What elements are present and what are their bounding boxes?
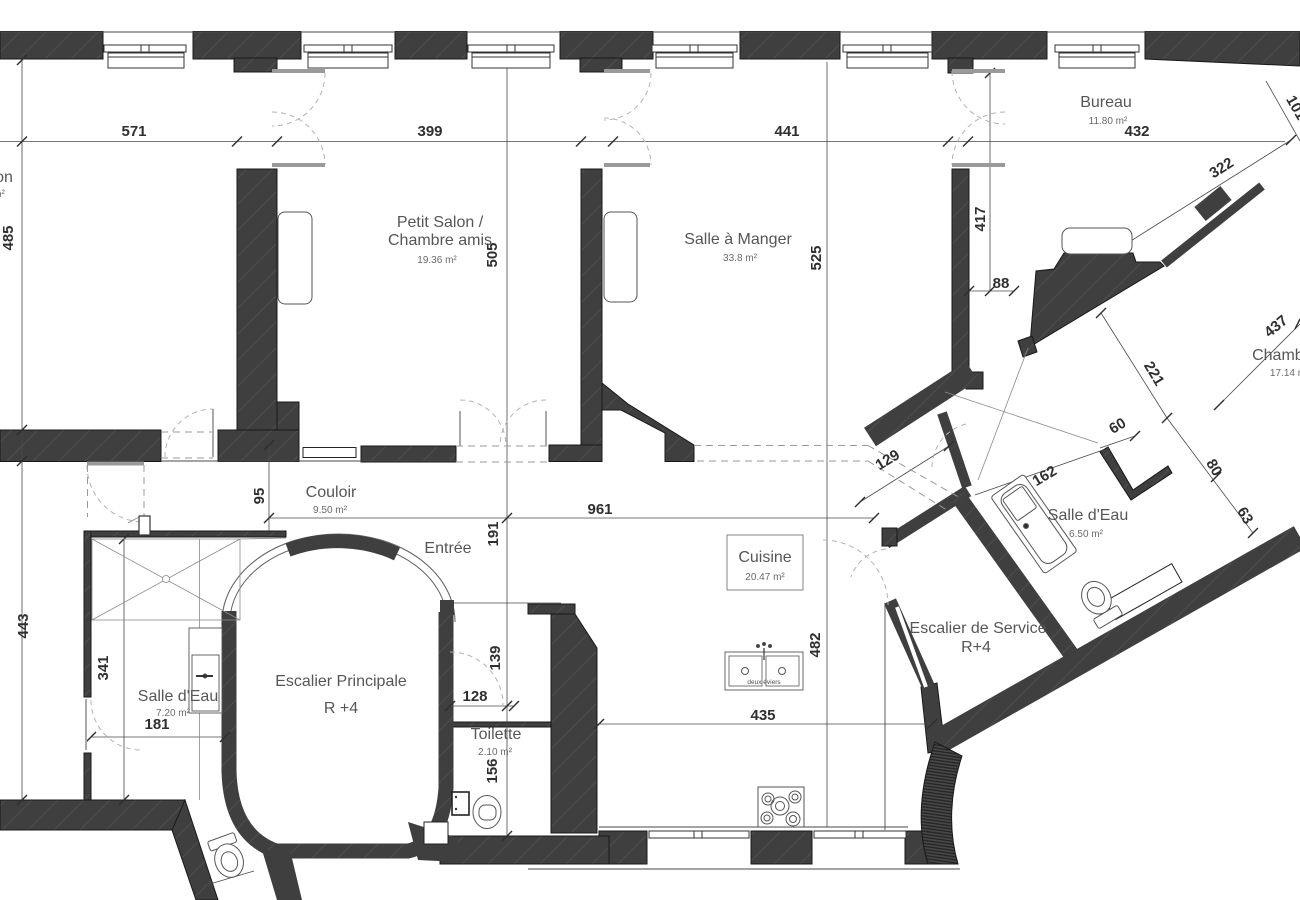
svg-text:11.80 m²: 11.80 m² (1089, 116, 1128, 127)
svg-text:432: 432 (1124, 123, 1149, 140)
svg-text:571: 571 (121, 123, 146, 140)
svg-text:R+4: R+4 (961, 639, 991, 656)
svg-text:417: 417 (972, 206, 989, 231)
svg-text:Bureau: Bureau (1080, 94, 1132, 111)
svg-text:60: 60 (1106, 415, 1129, 438)
svg-text:341: 341 (95, 655, 112, 680)
svg-text:399: 399 (417, 123, 442, 140)
svg-text:Salle d'Eau: Salle d'Eau (1048, 507, 1128, 524)
svg-text:441: 441 (774, 123, 799, 140)
svg-text:deux éviers: deux éviers (747, 679, 781, 686)
svg-text:19.36 m²: 19.36 m² (417, 255, 457, 266)
svg-text:Petit Salon /: Petit Salon / (397, 214, 484, 231)
svg-text:9.50 m²: 9.50 m² (313, 505, 348, 516)
svg-text:129: 129 (873, 446, 903, 473)
svg-text:95: 95 (251, 488, 268, 505)
svg-text:525: 525 (808, 245, 825, 270)
svg-text:505: 505 (484, 242, 501, 267)
svg-text:Escalier Principale: Escalier Principale (275, 673, 407, 690)
svg-text:139: 139 (487, 645, 504, 670)
svg-text:156: 156 (484, 758, 501, 783)
svg-text:485: 485 (0, 225, 17, 250)
svg-text:101: 101 (1282, 93, 1300, 123)
svg-text:Cuisine: Cuisine (738, 549, 791, 566)
svg-text:Salle d'Eau: Salle d'Eau (138, 688, 218, 705)
svg-text:R +4: R +4 (324, 700, 358, 717)
svg-text:128: 128 (462, 688, 487, 705)
svg-text:Chambre: Chambre (1252, 347, 1300, 364)
svg-text:181: 181 (144, 716, 169, 733)
svg-text:191: 191 (485, 521, 502, 546)
svg-text:Toilette: Toilette (471, 726, 522, 743)
svg-text:63: 63 (1233, 504, 1256, 527)
svg-text:88: 88 (993, 275, 1010, 292)
svg-text:33.8 m²: 33.8 m² (723, 253, 758, 264)
svg-text:2.10 m²: 2.10 m² (478, 747, 513, 758)
svg-text:Escalier de Service: Escalier de Service (910, 620, 1047, 637)
svg-text:961: 961 (587, 501, 612, 518)
svg-text:80: 80 (1202, 456, 1225, 479)
svg-text:Couloir: Couloir (306, 484, 357, 501)
svg-text:20.47 m²: 20.47 m² (745, 572, 785, 583)
svg-text:322: 322 (1206, 154, 1236, 182)
svg-text:Salon: Salon (0, 169, 13, 186)
svg-text:Chambre amis: Chambre amis (388, 232, 492, 249)
svg-text:435: 435 (750, 707, 775, 724)
svg-text:6.50 m²: 6.50 m² (1069, 529, 1104, 540)
svg-text:221: 221 (1140, 359, 1167, 389)
svg-text:482: 482 (807, 632, 824, 657)
svg-text:17.14 m: 17.14 m (1270, 368, 1300, 379)
svg-text:Entrée: Entrée (424, 540, 471, 557)
svg-text:437: 437 (1261, 312, 1291, 341)
svg-text:Salle à Manger: Salle à Manger (684, 231, 792, 248)
svg-text:11 m²: 11 m² (0, 189, 5, 200)
svg-text:443: 443 (15, 613, 32, 638)
